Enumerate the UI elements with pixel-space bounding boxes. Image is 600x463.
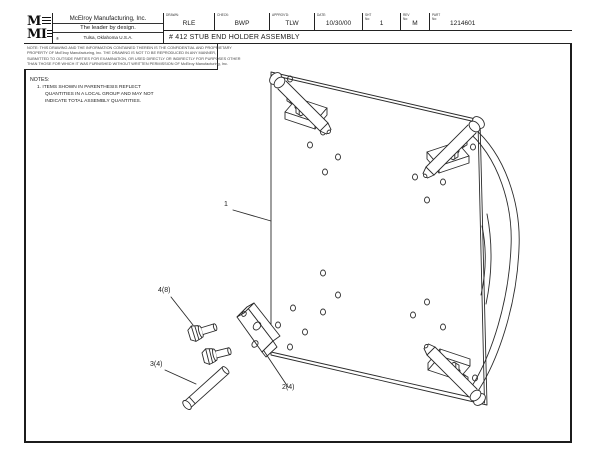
exploded-hex-bolt-1 bbox=[187, 319, 219, 343]
callout-plate: 1 bbox=[224, 201, 228, 209]
assembly-drawing bbox=[0, 0, 600, 463]
drawing-sheet-page: M MI McElroy Manufacturing, Inc. The lea… bbox=[0, 0, 600, 463]
exploded-hex-bolt-2 bbox=[201, 343, 233, 365]
callout-pin: 3(4) bbox=[150, 361, 162, 369]
exploded-clamp-pin bbox=[181, 365, 231, 411]
callout-bolt: 4(8) bbox=[158, 287, 170, 295]
callout-block: 2(4) bbox=[282, 384, 294, 392]
leader-lines bbox=[165, 210, 288, 387]
